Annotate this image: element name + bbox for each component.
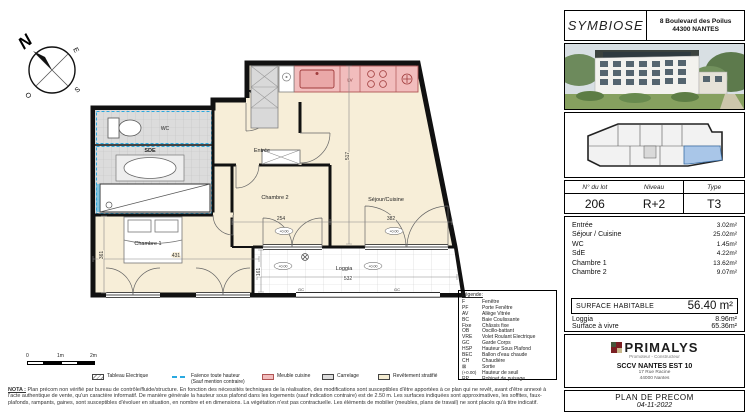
chambre1-label: Chambre 1 bbox=[134, 241, 161, 247]
dim-sejour-height: 517 bbox=[345, 152, 351, 161]
compass-rose: N E S O bbox=[14, 30, 82, 100]
project-address: 8 Boulevard des Poilus 44300 NANTES bbox=[647, 11, 744, 40]
dim-loggia-height: 161 bbox=[256, 268, 262, 277]
type-value: T3 bbox=[684, 194, 744, 213]
surface-habitable-box: SURFACE HABITABLE 56.40 m² bbox=[571, 298, 738, 314]
legend-label: Tableau Electrique bbox=[107, 374, 148, 380]
type-header: Type bbox=[684, 181, 744, 194]
compass-east-label: E bbox=[71, 47, 80, 55]
plan-sheet: N E S O bbox=[0, 0, 750, 420]
guardrail-label: GC bbox=[394, 287, 400, 292]
brand-name: PRIMALYS bbox=[625, 340, 699, 355]
dishwasher-label: LV bbox=[347, 78, 352, 83]
legend-label: Faïence toute hauteur (Sauf mention cont… bbox=[191, 374, 245, 385]
loggia-area-row: Loggia8.96m² bbox=[572, 316, 737, 323]
stratifie-swatch bbox=[378, 374, 390, 380]
area-row: SdE4.22m² bbox=[572, 249, 737, 258]
lot-number-header: N° du lot bbox=[565, 181, 625, 194]
area-row: Séjour / Cuisine25.02m² bbox=[572, 230, 737, 239]
room-areas-box: Entrée3.02m² Séjour / Cuisine25.02m² WC1… bbox=[564, 216, 745, 332]
svg-text:+0.00: +0.00 bbox=[368, 265, 377, 269]
area-row: WC1.45m² bbox=[572, 240, 737, 249]
ceiling-light-icon bbox=[302, 254, 309, 261]
loggia-label: Loggia bbox=[336, 266, 353, 272]
lot-number-value: 206 bbox=[565, 194, 625, 213]
loggia-floor bbox=[253, 248, 461, 293]
chambre2-label: Chambre 2 bbox=[261, 195, 288, 201]
scale-zero: 0 bbox=[26, 353, 29, 359]
carrelage-swatch bbox=[322, 374, 334, 380]
developer-box: PRIMALYS Promoteur - Constructeur SCCV N… bbox=[564, 334, 745, 388]
brand-tagline: Promoteur - Constructeur bbox=[565, 354, 744, 359]
toilet-icon bbox=[108, 118, 141, 138]
scale-one-meter: 1m bbox=[57, 353, 64, 359]
tableau-electrique-swatch bbox=[92, 374, 104, 380]
sejour-label: Séjour/Cuisine bbox=[368, 197, 404, 203]
materials-legend: Tableau Electrique Faïence toute hauteur… bbox=[92, 372, 457, 386]
wc-label: WC bbox=[161, 126, 170, 132]
document-date: 04-11-2022 bbox=[637, 402, 672, 409]
sde-label: SDE bbox=[144, 148, 156, 154]
meuble-cuisine-swatch bbox=[262, 374, 274, 380]
primalys-logo-icon bbox=[611, 342, 622, 353]
dim-chambre2-width: 254 bbox=[277, 216, 286, 222]
nota-text: NOTA : Plan précom non vérifié par burea… bbox=[8, 387, 556, 406]
dim-sejour-width: 382 bbox=[387, 216, 396, 222]
compass-south-label: S bbox=[74, 86, 82, 95]
legend-label: Carrelage bbox=[337, 374, 359, 380]
svg-text:+0.00: +0.00 bbox=[278, 265, 287, 269]
legend-label: Meuble cuisine bbox=[277, 374, 310, 380]
document-box: PLAN DE PRECOM 04-11-2022 bbox=[564, 390, 745, 412]
building-rendering bbox=[564, 43, 745, 110]
level-value: R+2 bbox=[625, 194, 685, 213]
dim-chambre1-height: 361 bbox=[99, 251, 105, 260]
area-row: Entrée3.02m² bbox=[572, 221, 737, 230]
svg-text:+0.00: +0.00 bbox=[389, 230, 398, 234]
company-name: SCCV NANTES EST 10 bbox=[565, 363, 744, 370]
washbasin-icon bbox=[116, 155, 184, 181]
surface-a-vivre-row: Surface à vivre65.36m² bbox=[572, 323, 737, 330]
faience-swatch bbox=[172, 376, 188, 378]
company-address: 17 Rue Racine 44000 Nantes bbox=[565, 370, 744, 382]
level-header: Niveau bbox=[625, 181, 685, 194]
scale-bar: 0 1m 2m bbox=[26, 353, 98, 369]
entree-label: Entrée bbox=[254, 148, 270, 154]
svg-text:+0.00: +0.00 bbox=[279, 230, 288, 234]
compass-west-label: O bbox=[23, 92, 32, 101]
dim-loggia-width: 532 bbox=[344, 276, 353, 282]
legend-box: Légende: FFenêtre PFPorte Fenêtre AVAllè… bbox=[458, 290, 557, 380]
area-row: Chambre 29.07m² bbox=[572, 268, 737, 277]
guardrail-label: GC bbox=[298, 287, 304, 292]
seuil-symbol: (+0.00) bbox=[462, 371, 480, 376]
legend-label: Revêtement stratifié bbox=[393, 374, 437, 380]
dim-chambre1-width: 431 bbox=[172, 253, 181, 259]
key-plan bbox=[564, 112, 745, 178]
extractor-icon bbox=[402, 74, 412, 84]
area-row: Chambre 113.62m² bbox=[572, 259, 737, 268]
legend-title: Légende: bbox=[462, 293, 553, 299]
scale-two-meter: 2m bbox=[90, 353, 97, 359]
compass-north-label: N bbox=[14, 30, 36, 53]
title-block-header: SYMBIOSE 8 Boulevard des Poilus 44300 NA… bbox=[564, 10, 745, 41]
lot-table: N° du lot Niveau Type 206 R+2 T3 bbox=[564, 180, 745, 214]
project-name: SYMBIOSE bbox=[565, 11, 647, 40]
document-title: PLAN DE PRECOM bbox=[615, 393, 694, 402]
shower-icon bbox=[100, 184, 210, 212]
